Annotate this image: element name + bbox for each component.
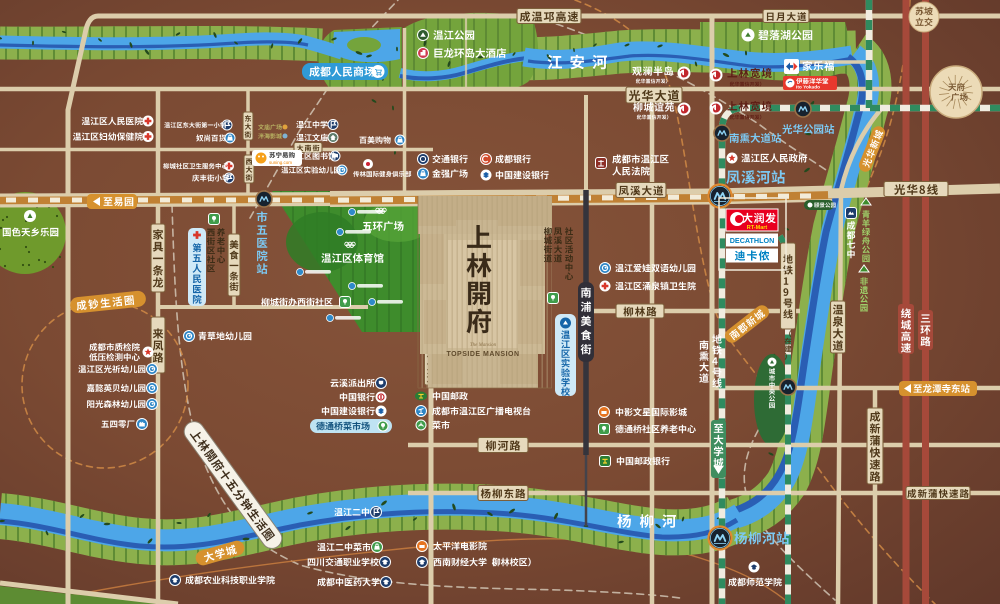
svg-text:Ito Yokado: Ito Yokado [796, 85, 820, 91]
svg-text:RT-Mart: RT-Mart [747, 225, 768, 231]
svg-text:DECATHLON: DECATHLON [730, 236, 775, 245]
svg-text:TOPSIDE MANSION: TOPSIDE MANSION [446, 351, 519, 358]
svg-text:The Mansion: The Mansion [470, 343, 497, 348]
svg-text:suning.com: suning.com [269, 160, 292, 165]
